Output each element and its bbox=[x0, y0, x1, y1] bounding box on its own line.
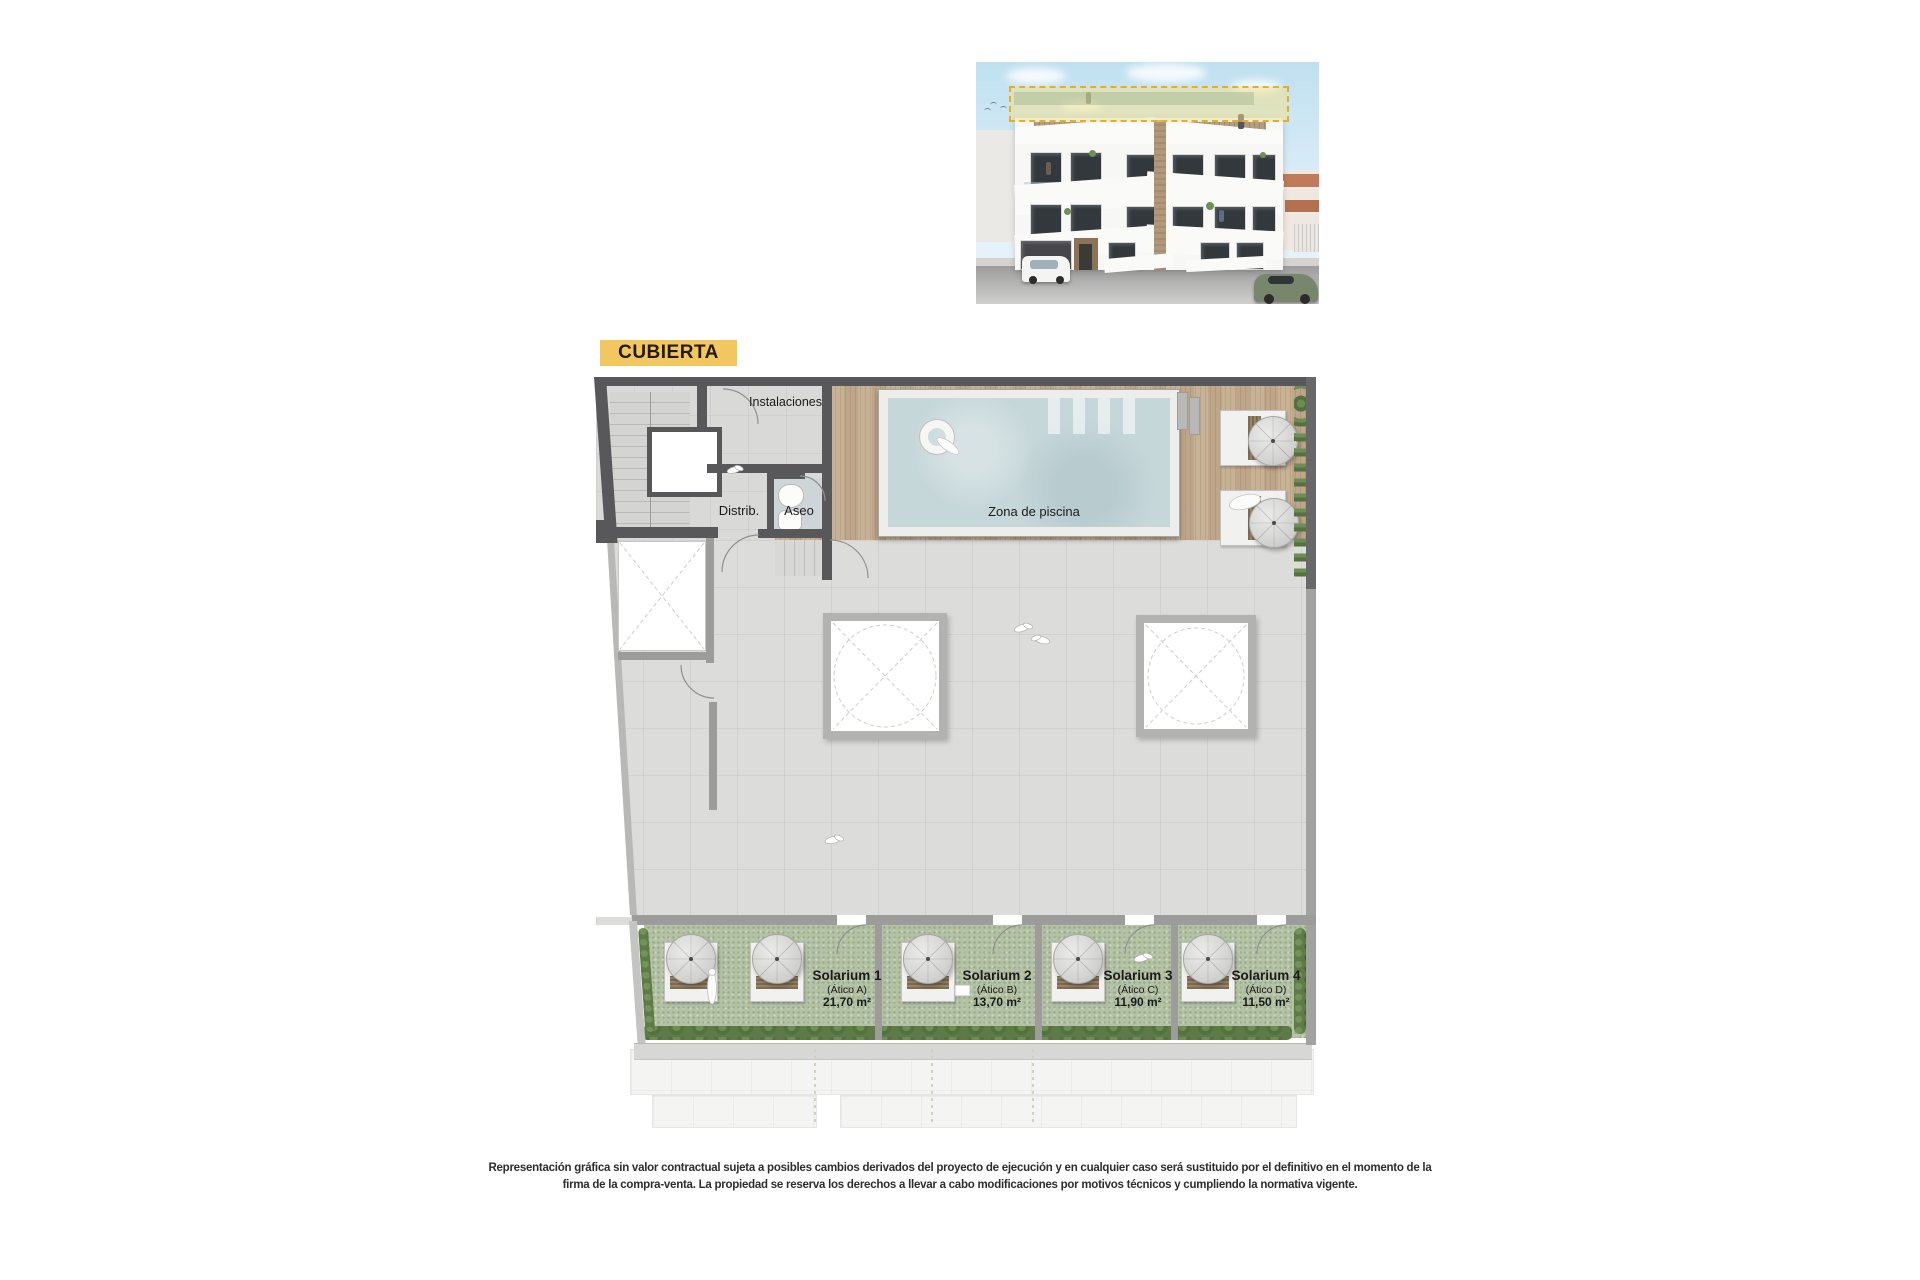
balcony-plant bbox=[1064, 208, 1071, 215]
disclaimer: Representación gráfica sin valor contrac… bbox=[0, 1160, 1920, 1194]
solarium-name: Solarium 2 bbox=[947, 968, 1047, 984]
person-figure bbox=[708, 969, 717, 1005]
solarium-area: 13,70 m² bbox=[947, 996, 1047, 1010]
plan-annotations bbox=[590, 372, 1320, 1132]
roof-plan: Instalaciones Distrib. Aseo Zona de pisc… bbox=[590, 372, 1320, 1132]
building-render bbox=[976, 62, 1319, 304]
page: CUBIERTA bbox=[0, 0, 1920, 1280]
skylight-cross-icon bbox=[833, 623, 937, 729]
skylight-cross-icon bbox=[1146, 625, 1246, 727]
car-wheel bbox=[1056, 276, 1064, 284]
solarium-name: Solarium 4 bbox=[1216, 968, 1316, 984]
room-label-distribuidor: Distrib. bbox=[708, 503, 770, 518]
neighbor-building-left bbox=[976, 130, 1017, 242]
balcony-plant bbox=[1089, 150, 1096, 157]
solarium-unit: (Ático A) bbox=[797, 984, 897, 996]
seagull-icon bbox=[726, 464, 1153, 963]
plan-title-badge: CUBIERTA bbox=[600, 340, 737, 366]
solarium-area: 11,50 m² bbox=[1216, 996, 1316, 1010]
neighbor-roof bbox=[1281, 174, 1319, 189]
door-swing-arcs bbox=[681, 389, 1286, 954]
person-figure bbox=[1228, 491, 1262, 512]
room-label-aseo: Aseo bbox=[771, 503, 827, 518]
car-wheel bbox=[1264, 294, 1274, 304]
cloud bbox=[1006, 68, 1066, 84]
person-figure bbox=[1219, 210, 1224, 222]
car-wheel bbox=[1029, 276, 1037, 284]
solarium-name: Solarium 3 bbox=[1088, 968, 1188, 984]
pool-float-figure bbox=[920, 420, 962, 458]
solarium-unit: (Ático C) bbox=[1088, 984, 1188, 996]
balcony-plant bbox=[1206, 202, 1214, 210]
solarium-3-label: Solarium 3 (Ático C) 11,90 m² bbox=[1088, 968, 1188, 1009]
solarium-unit: (Ático B) bbox=[947, 984, 1047, 996]
bird-icon bbox=[984, 108, 991, 114]
entrance-door bbox=[1079, 244, 1092, 270]
neighbor-gate bbox=[1294, 224, 1319, 252]
bird-icon bbox=[990, 102, 997, 108]
ghost-axis-dashes bbox=[815, 1049, 1033, 1125]
room-label-instalaciones: Instalaciones bbox=[710, 395, 822, 409]
balcony-plant bbox=[1260, 152, 1266, 158]
white-car-windows bbox=[1030, 260, 1058, 269]
solarium-unit: (Ático D) bbox=[1216, 984, 1316, 996]
cloud bbox=[1126, 64, 1206, 82]
neighbor-roof bbox=[1285, 200, 1319, 214]
roof-highlight-terrace-tint bbox=[1014, 92, 1254, 105]
void-cross-icon bbox=[620, 543, 704, 649]
wood-cladding-column bbox=[1154, 120, 1166, 270]
disclaimer-line-2: firma de la compra-venta. La propiedad s… bbox=[0, 1177, 1920, 1194]
car-wheel bbox=[1300, 294, 1310, 304]
solarium-2-label: Solarium 2 (Ático B) 13,70 m² bbox=[947, 968, 1047, 1009]
room-label-pool: Zona de piscina bbox=[954, 504, 1114, 519]
person-figure bbox=[1046, 162, 1051, 175]
solarium-area: 11,90 m² bbox=[1088, 996, 1188, 1010]
solarium-name: Solarium 1 bbox=[797, 968, 897, 984]
solarium-1-label: Solarium 1 (Ático A) 21,70 m² bbox=[797, 968, 897, 1009]
bird-icon bbox=[1000, 106, 1007, 112]
solarium-4-label: Solarium 4 (Ático D) 11,50 m² bbox=[1216, 968, 1316, 1009]
solarium-area: 21,70 m² bbox=[797, 996, 897, 1010]
green-car-windshield bbox=[1268, 276, 1294, 284]
disclaimer-line-1: Representación gráfica sin valor contrac… bbox=[0, 1160, 1920, 1177]
